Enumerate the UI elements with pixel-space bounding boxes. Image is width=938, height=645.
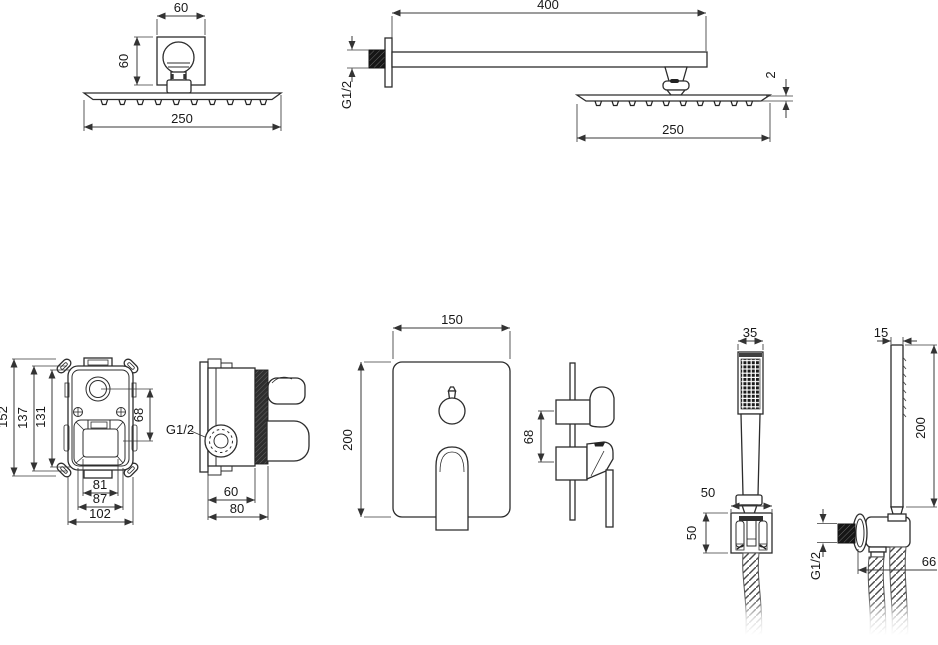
view-mixer-box-side: G1/2 60 80 bbox=[166, 359, 309, 520]
arm-ball-joint bbox=[663, 67, 689, 95]
lower-stem bbox=[267, 421, 309, 461]
dim-outlet-width-label: 66 bbox=[922, 554, 936, 569]
dim-overall-depth-label: 80 bbox=[230, 501, 244, 516]
dim-arm-length-label: 400 bbox=[537, 0, 559, 12]
wall-flange bbox=[385, 38, 392, 87]
hose-nut bbox=[869, 547, 886, 552]
wall-plate bbox=[200, 362, 208, 472]
spray-nozzles bbox=[101, 100, 267, 105]
view-mixer-box-front: 152 137 131 68 81 87 102 bbox=[0, 358, 153, 525]
dim-housing-height-label: 137 bbox=[15, 407, 30, 429]
mixer-housing bbox=[68, 366, 133, 470]
technical-drawing-page: 60 60 250 400 bbox=[0, 0, 938, 645]
lever-handle-bar bbox=[606, 470, 613, 527]
dim-mount-width-label: 60 bbox=[174, 0, 188, 15]
dim-opening-width-label: 81 bbox=[93, 477, 107, 492]
shower-head-profile bbox=[84, 93, 281, 100]
wall-bracket bbox=[731, 513, 772, 553]
spray-nozzles-side bbox=[595, 101, 753, 106]
trim-plate-edge bbox=[570, 363, 575, 520]
thread-nipple bbox=[369, 50, 385, 68]
hand-shower-wand bbox=[891, 345, 903, 507]
dim-wand-width-label: 15 bbox=[874, 325, 888, 340]
dim-outlet-thread-label: G1/2 bbox=[808, 552, 823, 580]
dim-plate-height-label: 200 bbox=[340, 429, 355, 451]
view-trim-plate-front: 150 200 bbox=[340, 312, 510, 530]
shower-arm bbox=[392, 52, 707, 67]
hand-shower-handle bbox=[741, 414, 760, 495]
ball-joint bbox=[163, 42, 194, 93]
upper-stem bbox=[268, 377, 305, 404]
dim-overall-height-label: 152 bbox=[0, 406, 10, 428]
view-trim-plate-side: 68 bbox=[521, 363, 614, 527]
shower-head-profile-side bbox=[577, 95, 770, 101]
view-overhead-shower-side: 400 G1/2 2 250 bbox=[339, 0, 793, 142]
dim-housing-width-label: 87 bbox=[93, 491, 107, 506]
dim-plate-width-label: 150 bbox=[441, 312, 463, 327]
dim-head-width-label: 250 bbox=[171, 111, 193, 126]
dim-head-thickness-label: 2 bbox=[763, 71, 778, 78]
dim-center-spacing-label: 68 bbox=[131, 408, 146, 422]
spray-face bbox=[741, 359, 760, 409]
dim-connection-thread-label: G1/2 bbox=[339, 81, 354, 109]
dim-holder-width-label: 50 bbox=[701, 485, 715, 500]
wand-nut bbox=[888, 514, 906, 521]
dim-control-spacing-label: 68 bbox=[521, 430, 536, 444]
dim-valve-thread-label: G1/2 bbox=[166, 422, 194, 437]
view-overhead-shower-front: 60 60 250 bbox=[84, 0, 281, 131]
mixer-lever-side bbox=[556, 442, 613, 527]
dim-head-width-side-label: 250 bbox=[662, 122, 684, 137]
dim-mount-depth-label: 60 bbox=[116, 54, 131, 68]
dim-body-height-label: 131 bbox=[33, 406, 48, 428]
mixer-lever bbox=[436, 447, 468, 530]
diverter-knob-side bbox=[556, 387, 614, 427]
wand-ribs bbox=[904, 358, 907, 417]
shower-set-dimension-diagram: 60 60 250 400 bbox=[0, 0, 938, 645]
outlet-thread-nipple bbox=[838, 524, 855, 543]
dim-body-width-label: 102 bbox=[89, 506, 111, 521]
side-connection-port bbox=[205, 425, 237, 457]
dim-body-depth-label: 60 bbox=[224, 484, 238, 499]
dim-holder-height-label: 50 bbox=[684, 526, 699, 540]
dim-hand-head-width-label: 35 bbox=[743, 325, 757, 340]
hose-fade-overlay bbox=[690, 596, 938, 645]
cartridge-band bbox=[255, 370, 268, 464]
dim-wand-length-label: 200 bbox=[913, 417, 928, 439]
